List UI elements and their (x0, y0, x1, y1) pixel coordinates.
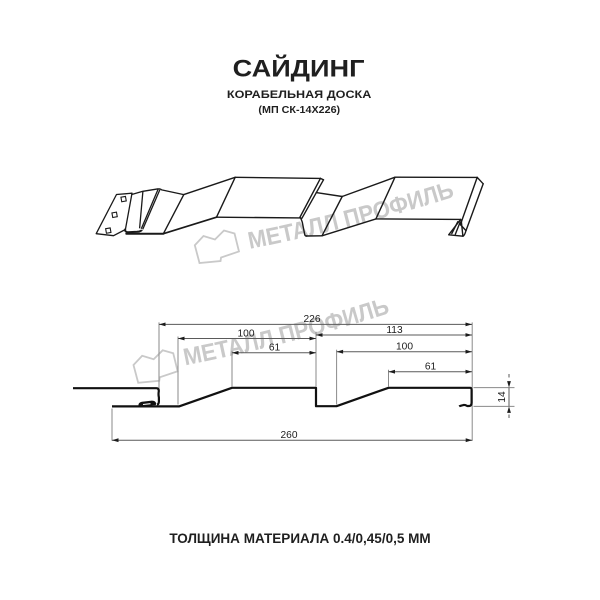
svg-text:КОРАБЕЛЬНАЯ ДОСКА: КОРАБЕЛЬНАЯ ДОСКА (227, 89, 371, 101)
svg-text:260: 260 (281, 430, 298, 441)
svg-text:113: 113 (386, 325, 403, 336)
svg-text:ТОЛЩИНА МАТЕРИАЛА 0.4/0,45/0,5: ТОЛЩИНА МАТЕРИАЛА 0.4/0,45/0,5 ММ (169, 531, 430, 547)
svg-text:САЙДИНГ: САЙДИНГ (233, 55, 365, 83)
svg-text:100: 100 (396, 342, 413, 353)
svg-text:61: 61 (269, 343, 281, 354)
svg-text:226: 226 (304, 314, 321, 325)
svg-text:(МП СК-14Х226): (МП СК-14Х226) (258, 105, 340, 116)
svg-text:100: 100 (238, 328, 255, 339)
svg-text:61: 61 (425, 362, 437, 373)
svg-text:14: 14 (497, 391, 508, 403)
